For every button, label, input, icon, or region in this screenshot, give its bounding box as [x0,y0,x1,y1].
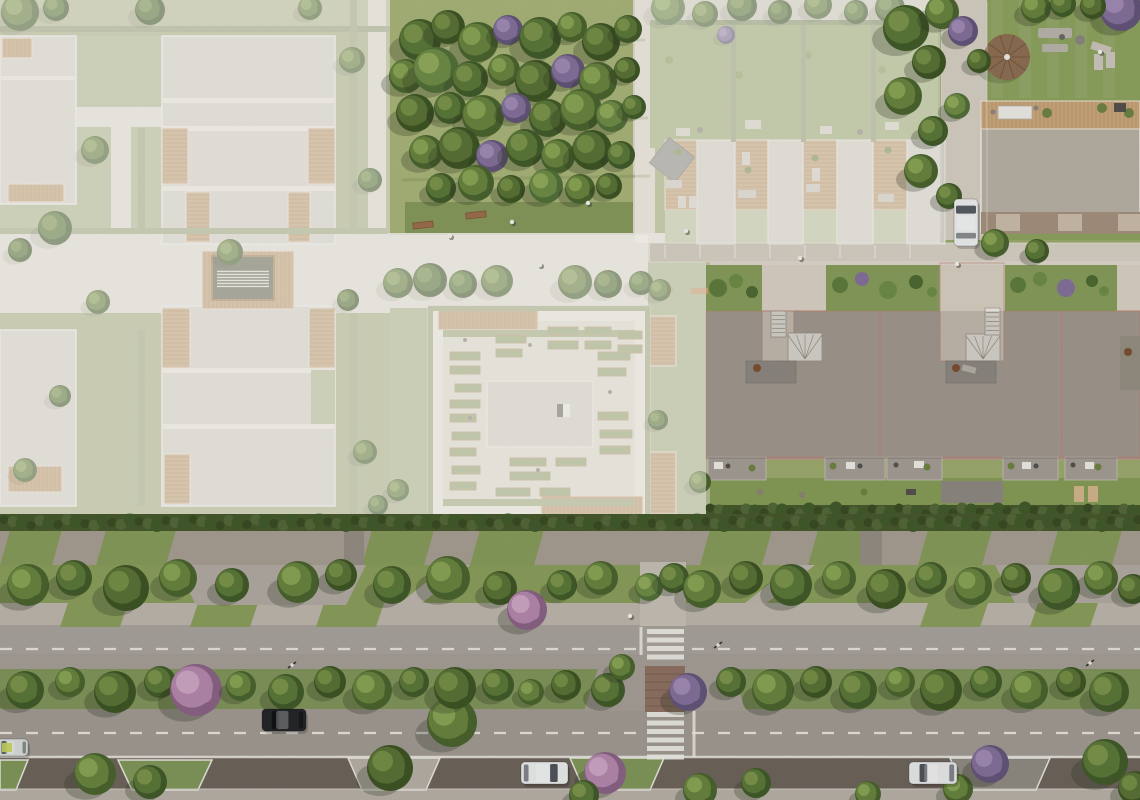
site-plan-rendering [0,0,1140,800]
rect [0,0,1140,800]
layer-texture [0,0,1140,800]
aerial-masterplan-svg [0,0,1140,800]
